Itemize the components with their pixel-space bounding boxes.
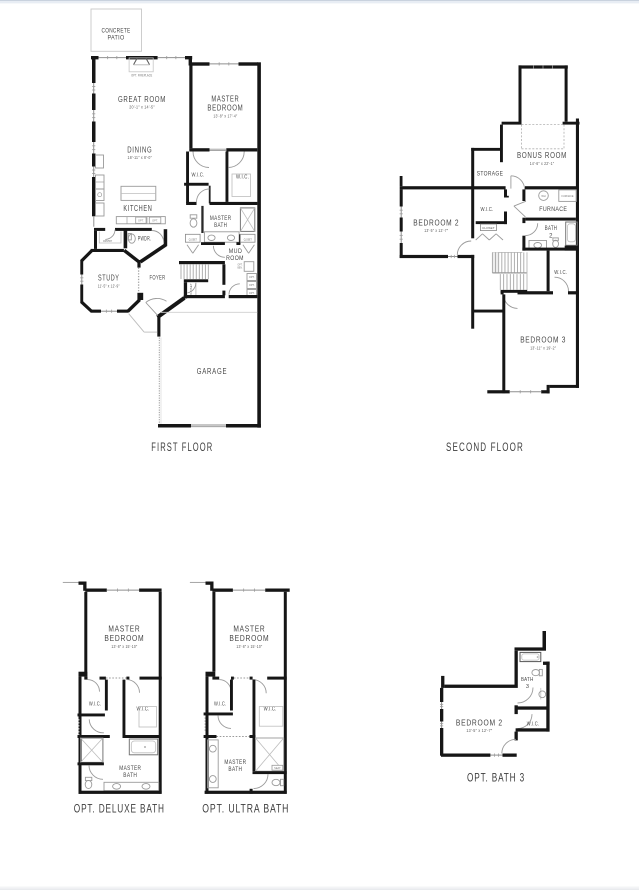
svg-text:13′-5″ x 12′-7″: 13′-5″ x 12′-7″ (466, 728, 492, 734)
svg-text:13′-8″ x 15′-10″: 13′-8″ x 15′-10″ (111, 644, 137, 650)
svg-text:MASTER: MASTER (210, 215, 232, 222)
svg-text:CLOSET: CLOSET (482, 226, 495, 230)
svg-text:WH: WH (541, 194, 545, 198)
svg-text:FIRST FLOOR: FIRST FLOOR (151, 440, 213, 454)
svg-text:OPT.: OPT. (249, 291, 255, 295)
svg-text:W.I.C.: W.I.C. (236, 175, 249, 181)
svg-text:14′-6″ x 22′-1″: 14′-6″ x 22′-1″ (530, 161, 555, 167)
svg-text:CLOSET: CLOSET (244, 238, 252, 242)
svg-text:18′-11″ x 8′-0″: 18′-11″ x 8′-0″ (128, 155, 153, 161)
svg-text:KITCHEN: KITCHEN (123, 204, 152, 213)
svg-text:BONUS ROOM: BONUS ROOM (517, 151, 567, 160)
svg-text:W.I.C.: W.I.C. (527, 721, 540, 727)
svg-text:PWDR.: PWDR. (138, 237, 152, 243)
svg-text:20′-1″ x 14′-5″: 20′-1″ x 14′-5″ (129, 105, 155, 111)
svg-text:BEDROOM 2: BEDROOM 2 (456, 718, 503, 727)
svg-text:3: 3 (526, 684, 529, 690)
svg-text:ROOM: ROOM (226, 255, 244, 262)
svg-text:MASTER: MASTER (211, 95, 239, 104)
svg-text:BEDROOM: BEDROOM (104, 634, 144, 643)
svg-text:MASTER: MASTER (119, 765, 141, 772)
svg-text:BATH: BATH (123, 772, 137, 779)
svg-text:BEDROOM: BEDROOM (207, 104, 243, 113)
svg-text:OPT. FIREPLACE: OPT. FIREPLACE (131, 73, 152, 77)
svg-text:13′-5″ x 12′-7″: 13′-5″ x 12′-7″ (424, 228, 448, 234)
svg-text:GARAGE: GARAGE (197, 367, 228, 376)
svg-text:BATH: BATH (214, 222, 227, 229)
svg-text:OPT. DELUXE BATH: OPT. DELUXE BATH (74, 802, 165, 816)
svg-text:W.I.C.: W.I.C. (192, 173, 205, 179)
svg-text:11′-5″ x 12′-9″: 11′-5″ x 12′-9″ (98, 283, 120, 289)
svg-text:FOYER: FOYER (150, 275, 166, 282)
svg-text:W.I.C.: W.I.C. (137, 706, 150, 712)
svg-text:BEDROOM 3: BEDROOM 3 (520, 336, 566, 345)
svg-text:BEDROOM 2: BEDROOM 2 (413, 218, 459, 227)
svg-text:GREAT ROOM: GREAT ROOM (118, 95, 166, 104)
svg-text:OPT.: OPT. (249, 283, 255, 287)
svg-text:OPT.: OPT. (152, 219, 158, 223)
svg-text:OPT.: OPT. (249, 275, 255, 279)
svg-text:MASTER: MASTER (108, 625, 140, 634)
svg-text:FURNACE: FURNACE (539, 206, 567, 213)
svg-text:OPT. BATH 3: OPT. BATH 3 (467, 771, 525, 785)
svg-text:W.I.C.: W.I.C. (89, 702, 102, 708)
svg-text:OPT.: OPT. (138, 219, 144, 223)
svg-text:CLOSET: CLOSET (189, 238, 197, 242)
svg-text:W.I.C.: W.I.C. (554, 270, 567, 276)
svg-text:W.I.C.: W.I.C. (481, 207, 494, 213)
svg-text:MASTER: MASTER (233, 625, 265, 634)
svg-text:DINING: DINING (127, 146, 152, 155)
svg-text:BATH: BATH (521, 677, 534, 683)
svg-text:FURNACE: FURNACE (561, 195, 573, 198)
svg-text:MASTER: MASTER (224, 759, 246, 766)
svg-text:13′-8″ x 17′-4″: 13′-8″ x 17′-4″ (213, 113, 237, 119)
svg-text:BATH: BATH (545, 226, 558, 232)
svg-text:PANTRY: PANTRY (103, 239, 112, 243)
svg-text:BATH: BATH (228, 766, 242, 773)
svg-text:SEAT: SEAT (274, 766, 281, 770)
svg-text:STORAGE: STORAGE (477, 171, 504, 178)
svg-text:13′-8″ x 15′-10″: 13′-8″ x 15′-10″ (236, 644, 262, 650)
svg-text:CLOSET: CLOSET (189, 283, 193, 296)
svg-text:STUDY: STUDY (98, 274, 120, 283)
svg-text:BEN.: BEN. (238, 266, 243, 270)
svg-text:BEDROOM: BEDROOM (229, 634, 269, 643)
svg-text:MUD: MUD (229, 248, 243, 255)
svg-text:PATIO: PATIO (108, 36, 125, 42)
svg-text:13′-11″ x 19′-2″: 13′-11″ x 19′-2″ (530, 345, 556, 351)
svg-text:CONCRETE: CONCRETE (102, 29, 131, 35)
svg-text:OPT. ULTRA BATH: OPT. ULTRA BATH (202, 802, 289, 816)
svg-text:W.I.C.: W.I.C. (264, 706, 277, 712)
svg-text:SECOND FLOOR: SECOND FLOOR (446, 440, 524, 454)
svg-text:W.I.C.: W.I.C. (214, 702, 227, 708)
